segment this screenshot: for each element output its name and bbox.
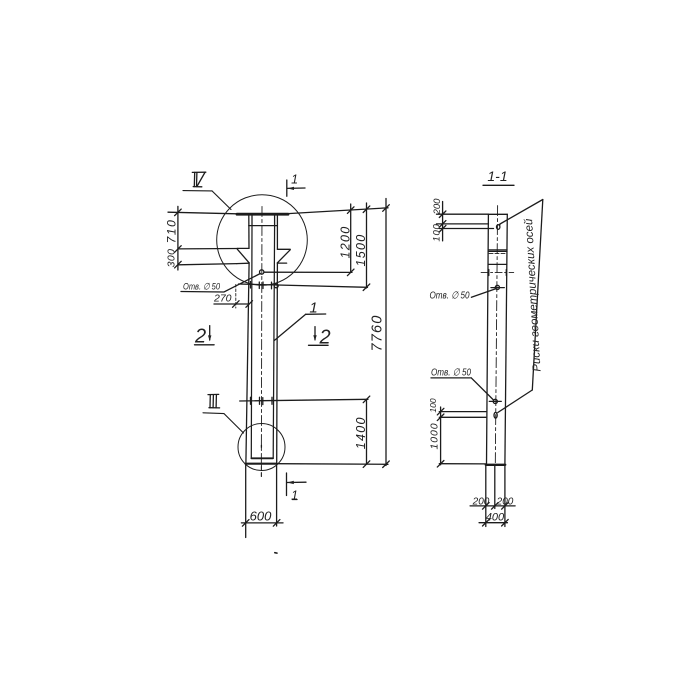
svg-text:1500: 1500 — [354, 233, 368, 266]
svg-text:Отв. ∅ 50: Отв. ∅ 50 — [183, 282, 221, 292]
svg-text:270: 270 — [213, 293, 232, 305]
svg-text:400: 400 — [486, 512, 505, 524]
svg-text:1: 1 — [291, 488, 298, 502]
svg-text:1-1: 1-1 — [487, 168, 507, 184]
svg-text:710: 710 — [164, 219, 178, 244]
svg-text:2: 2 — [194, 325, 206, 347]
svg-text:1400: 1400 — [354, 416, 368, 449]
svg-text:600: 600 — [250, 509, 272, 524]
svg-text:1: 1 — [291, 172, 298, 186]
svg-text:300: 300 — [166, 249, 178, 268]
svg-text:1000: 1000 — [429, 423, 441, 450]
svg-text:200: 200 — [472, 497, 490, 508]
svg-text:100: 100 — [431, 223, 442, 241]
svg-text:7760: 7760 — [370, 314, 386, 351]
svg-text:200: 200 — [432, 198, 443, 216]
svg-text:1200: 1200 — [338, 225, 352, 258]
svg-text:Отв. ∅ 50: Отв. ∅ 50 — [430, 291, 470, 302]
svg-text:200: 200 — [496, 497, 514, 508]
svg-text:Отв. ∅ 50: Отв. ∅ 50 — [431, 368, 471, 379]
svg-text:100: 100 — [428, 398, 438, 412]
